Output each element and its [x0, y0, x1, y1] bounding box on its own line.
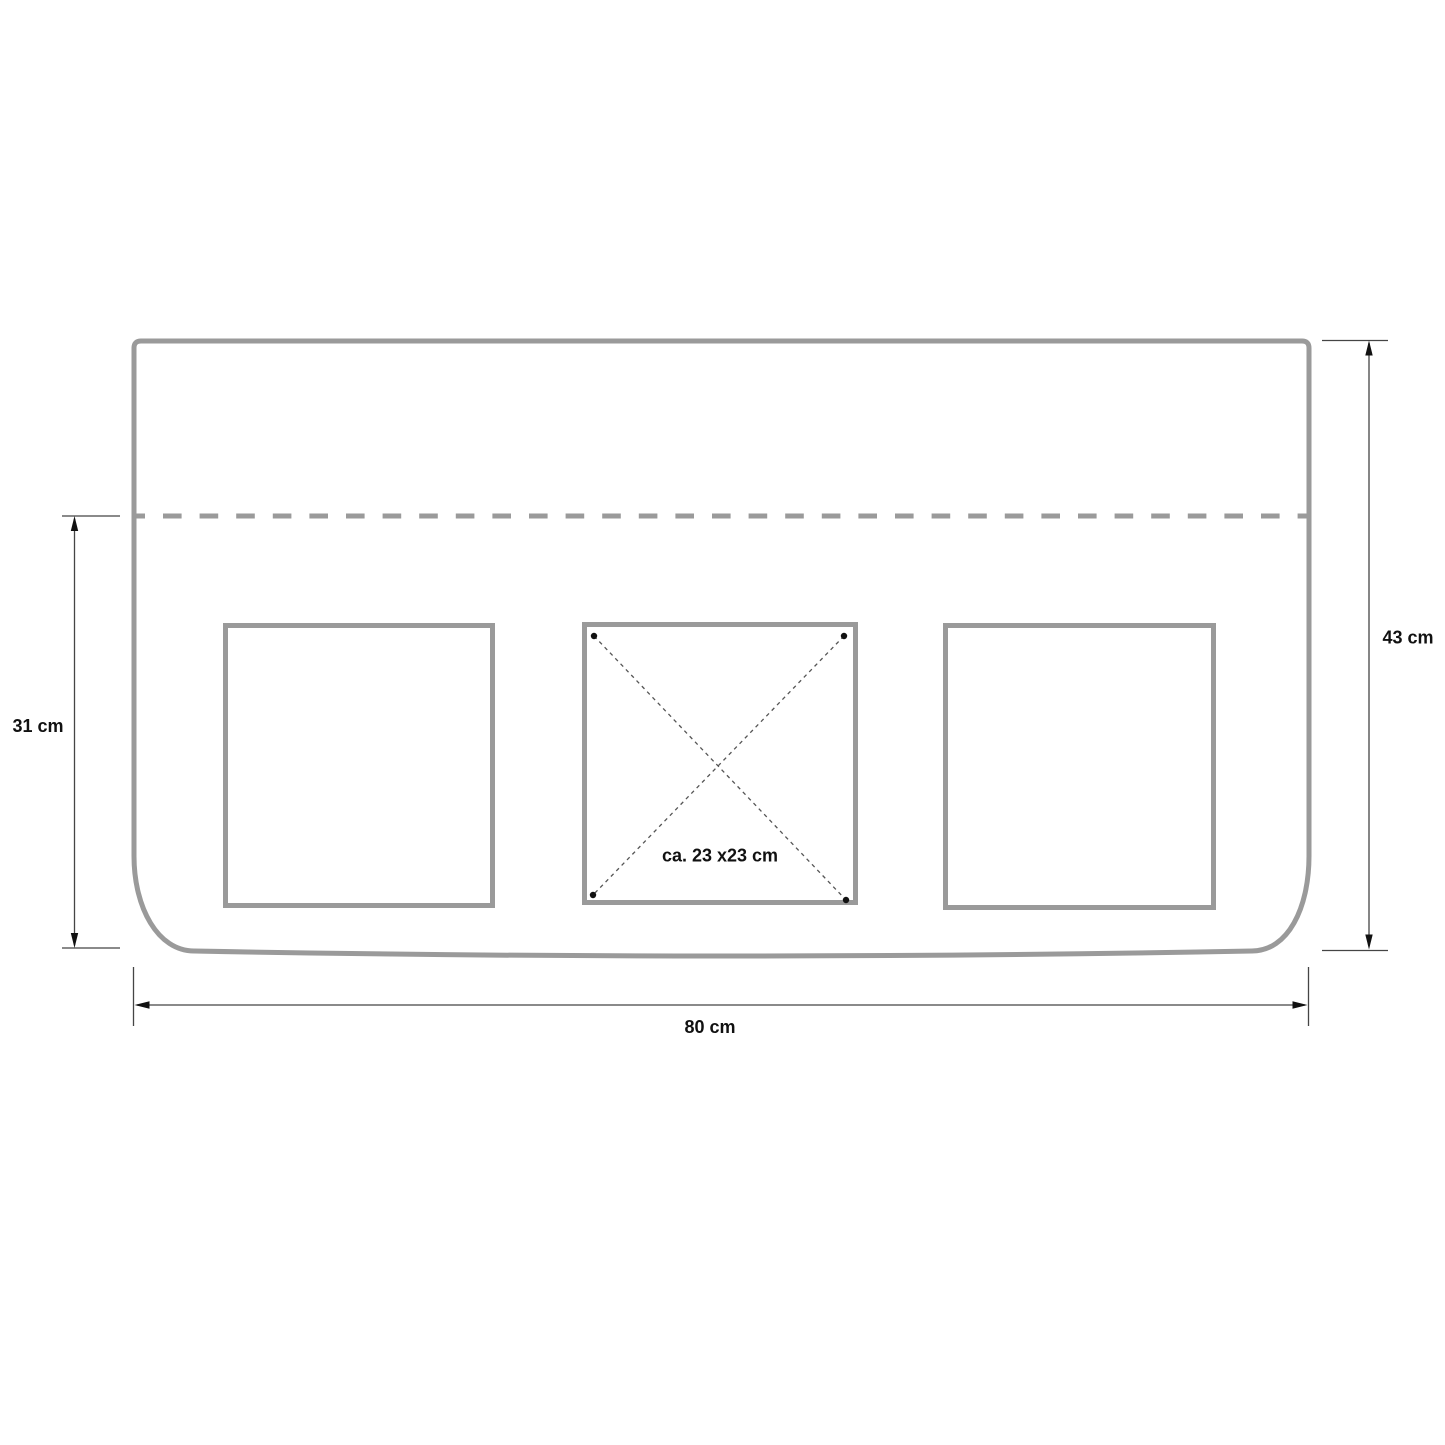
svg-text:43 cm: 43 cm — [1382, 628, 1433, 648]
svg-text:31 cm: 31 cm — [12, 716, 63, 736]
svg-text:80 cm: 80 cm — [684, 1017, 735, 1037]
svg-text:ca. 23 x23 cm: ca. 23 x23 cm — [662, 846, 778, 866]
